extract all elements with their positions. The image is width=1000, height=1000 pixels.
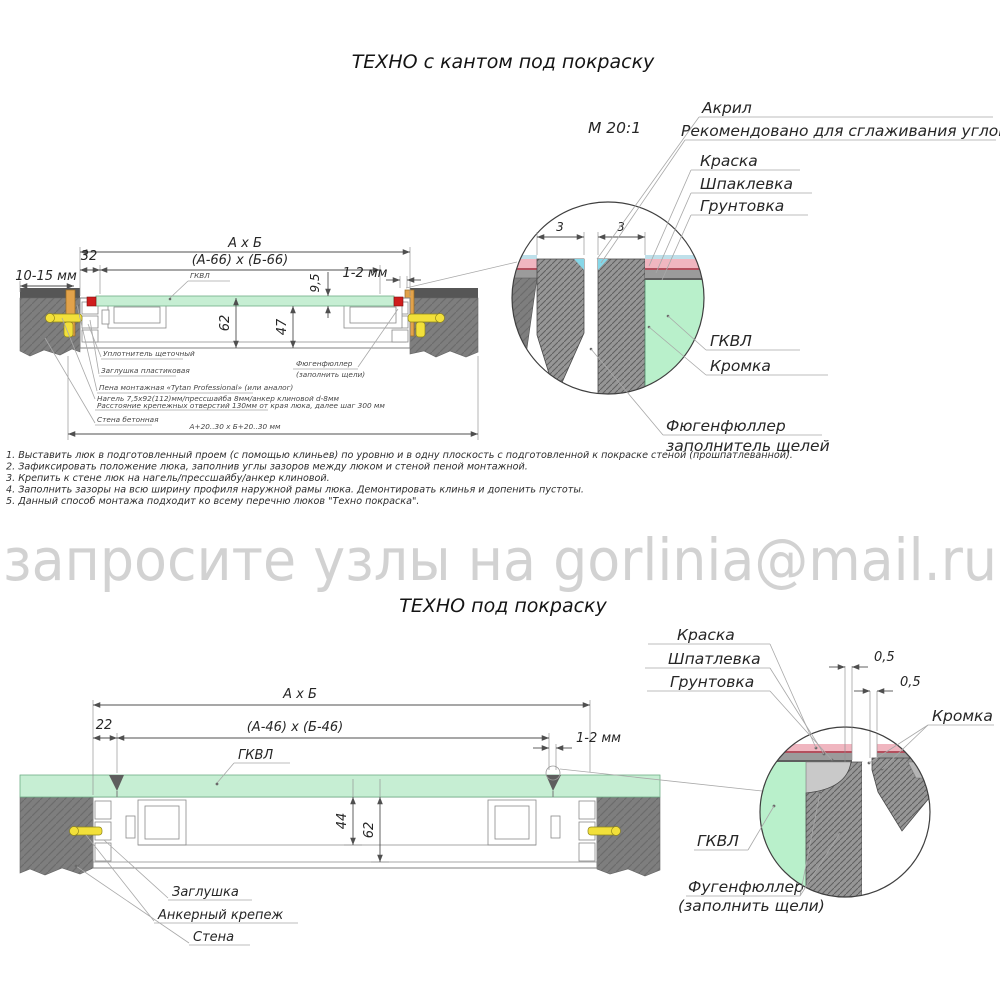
label-edge: Кромка <box>932 707 993 725</box>
callout-text: Анкерный крепеж <box>157 908 283 923</box>
label-text: ГКВЛ <box>190 271 210 280</box>
scale-label: М 20:1 <box>588 119 641 137</box>
bottom-section-view: А х Б (А-46) х (Б-46) 22 1-2 мм 44 62 <box>20 687 762 945</box>
watermark-text: запросите узлы на gorlinia@mail.ru <box>3 526 997 594</box>
dim-inner: (А-66) х (Б-66) <box>100 253 380 294</box>
latch-tab <box>102 310 109 324</box>
profile-gap <box>862 762 872 902</box>
label-filler-2: (заполнить щели) <box>678 897 825 915</box>
dim-text: 10-15 мм <box>15 269 77 284</box>
label-acryl: Акрил <box>701 99 752 117</box>
paint-layer-right <box>645 259 710 268</box>
putty-layer-left <box>500 270 537 278</box>
anchor-plug <box>416 322 425 337</box>
label-putty: Шпатлевка <box>668 650 761 668</box>
note-line: 5. Данный способ монтажа подходит ко все… <box>6 495 419 507</box>
anchor-head <box>436 314 445 323</box>
dim-text: 47 <box>275 318 290 335</box>
dim-text: 62 <box>218 315 233 332</box>
dim-text: 0,5 <box>874 650 895 665</box>
bottom-title: ТЕХНО под покраску <box>399 595 607 617</box>
dim-text: 3 <box>556 220 564 234</box>
label-primer: Грунтовка <box>670 673 754 691</box>
plug-slot <box>579 843 595 861</box>
label-filler-1: Фюгенфюллер <box>666 417 786 435</box>
anchor-bolt-left <box>70 827 103 836</box>
primer-line <box>645 278 710 280</box>
paint-line-left <box>500 268 537 270</box>
leader-to-detail <box>406 262 517 288</box>
concrete-wall-right <box>597 797 660 876</box>
notes-block: 1. Выставить люк в подготовленный проем … <box>6 450 793 507</box>
note-line: 3. Крепить к стене люк на нагель/прессша… <box>6 472 330 484</box>
latch-tab <box>551 816 560 838</box>
plug-slot <box>392 330 408 342</box>
note-line: 1. Выставить люк в подготовленный проем … <box>6 450 793 461</box>
dim-text: А+20..30 х Б+20..30 мм <box>189 422 281 431</box>
dim-text: 22 <box>96 718 113 733</box>
dim-text: 32 <box>81 249 98 264</box>
anchor-head <box>46 314 55 323</box>
dim-text: 1-2 мм <box>343 266 388 281</box>
door-profile-inner <box>495 806 529 839</box>
callout-text: Стена <box>193 930 234 945</box>
dim-text: 62 <box>362 822 377 839</box>
dim-32: 32 <box>80 249 100 270</box>
kant-left <box>87 297 96 306</box>
dim-edge-gap: 1-2 мм <box>343 266 421 288</box>
dim-text: (А-66) х (Б-66) <box>192 253 289 268</box>
wall-surface-right <box>410 288 478 298</box>
note-line: 4. Заполнить зазоры на всю ширину профил… <box>6 485 584 496</box>
label-edge: Кромка <box>710 357 771 375</box>
anchor-bolt-right <box>588 827 621 836</box>
door-profile-inner <box>145 806 179 839</box>
plug-slot <box>95 801 111 819</box>
gkvl-panel <box>96 296 394 306</box>
label-text: ГКВЛ <box>238 748 273 763</box>
dim-edge-gap: 1-2 мм <box>533 731 621 770</box>
dim-text: 9,5 <box>308 273 322 292</box>
label-filler-1: Фугенфюллер <box>688 878 804 896</box>
plug-slot <box>579 801 595 819</box>
latch-tab <box>126 816 135 838</box>
drawing-canvas: запросите узлы на gorlinia@mail.ru ТЕХНО… <box>0 0 1000 1000</box>
label-gkvl-detail: ГКВЛ <box>697 832 739 850</box>
callout-text: Заглушка пластиковая <box>101 366 190 375</box>
acryl-film-layer <box>500 255 537 259</box>
anchor-head <box>612 827 621 836</box>
door-frame-profile <box>598 259 645 397</box>
callout-text: Уплотнитель щеточный <box>103 349 195 358</box>
technical-drawing-page: запросите узлы на gorlinia@mail.ru ТЕХНО… <box>0 0 1000 1000</box>
callout-text: Стена бетонная <box>97 415 159 424</box>
dim-text: А х Б <box>227 236 262 251</box>
label-gkvl-detail: ГКВЛ <box>710 332 752 350</box>
callout-text: (заполнить щели) <box>296 370 365 379</box>
note-line: 2. Зафиксировать положение люка, заполни… <box>6 462 528 473</box>
dim-text: 0,5 <box>900 675 921 690</box>
callout-wall: Стена <box>75 865 250 945</box>
anchor-head <box>70 827 79 836</box>
dim-gap-b: 0,5 <box>854 675 921 731</box>
dim-text: А х Б <box>282 687 317 702</box>
door-profile-inner <box>114 307 160 323</box>
plug-slot <box>95 843 111 861</box>
callout-text: Фюгенфюллер <box>296 359 353 368</box>
callout-text: Пена монтажная «Tytan Professional» (или… <box>99 383 293 392</box>
top-section-view: А х Б (А-66) х (Б-66) 32 10-15 мм 9,5 1-… <box>15 236 517 440</box>
label-paint: Краска <box>700 152 758 170</box>
label-putty: Шпаклевка <box>700 175 793 193</box>
bottom-detail-contents <box>755 700 940 907</box>
callout-text: Заглушка <box>172 885 239 900</box>
dim-text: (А-46) х (Б-46) <box>247 720 344 735</box>
kant-right <box>394 297 403 306</box>
top-title: ТЕХНО с кантом под покраску <box>352 51 655 73</box>
dim-inner: (А-46) х (Б-46) <box>117 720 549 773</box>
acryl-film-layer <box>645 255 710 259</box>
callout-text: Расстояние крепежных отверстий 130мм от … <box>97 401 385 410</box>
dim-text: 44 <box>335 813 350 830</box>
label-acryl-note: Рекомендовано для сглаживания углов <box>681 122 1000 140</box>
concrete-wall-left <box>20 797 93 875</box>
dim-gap-a: 0,5 <box>829 650 895 729</box>
dim-22: 22 <box>93 718 117 738</box>
dim-text: 1-2 мм <box>576 731 621 746</box>
label-paint: Краска <box>677 626 735 644</box>
label-primer: Грунтовка <box>700 197 784 215</box>
door-profile-inner <box>350 307 396 323</box>
